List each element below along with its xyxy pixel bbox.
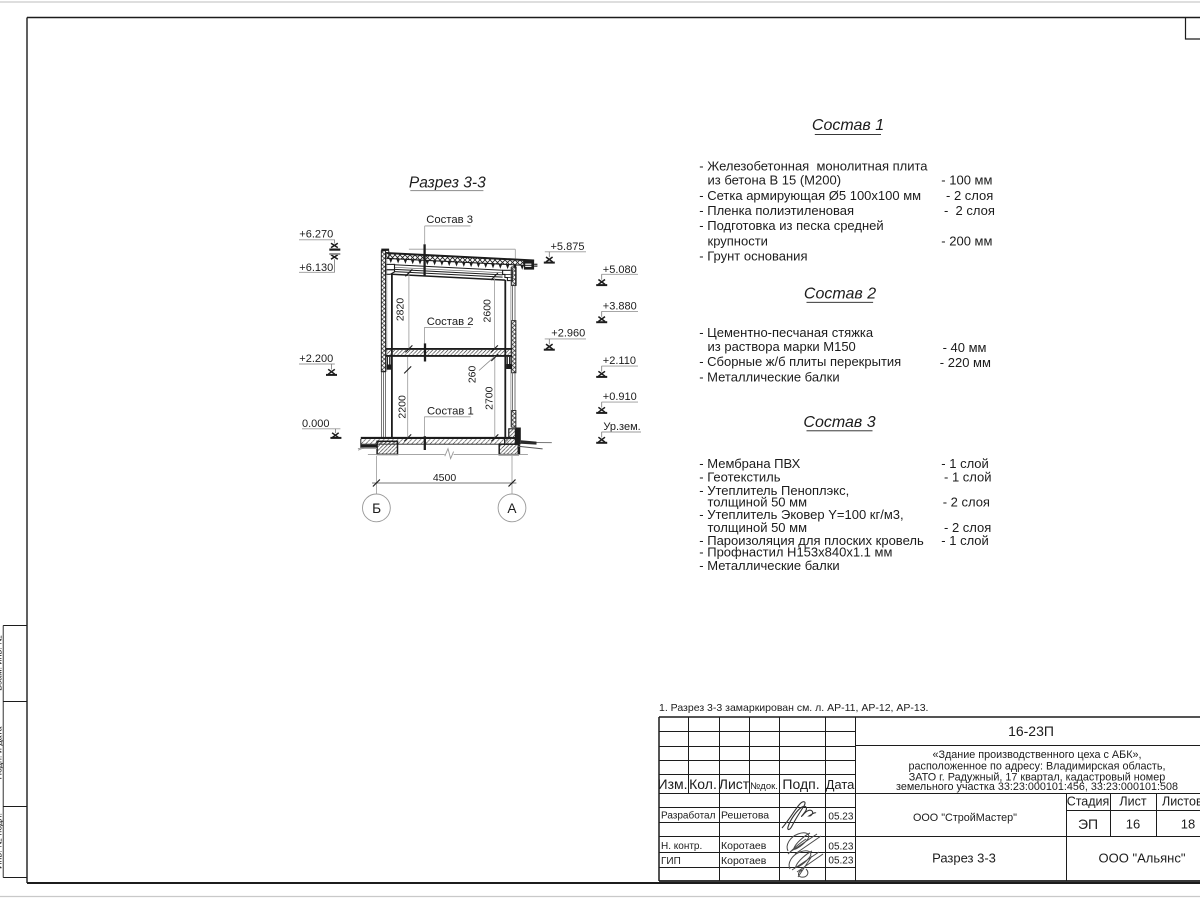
svg-text:Состав 1: Состав 1: [427, 405, 474, 417]
svg-text:2700: 2700: [484, 386, 496, 410]
svg-text:+2.960: +2.960: [551, 328, 585, 340]
svg-text:+0.910: +0.910: [603, 391, 637, 403]
svg-text:земельного участка 33:23:00010: земельного участка 33:23:000101:456, 33:…: [896, 781, 1178, 793]
svg-text:- 2 слоя: - 2 слоя: [943, 495, 990, 510]
svg-text:- Металлические балки: - Металлические балки: [699, 558, 839, 573]
svg-text:+3.880: +3.880: [603, 301, 637, 313]
svg-text:05.23: 05.23: [828, 842, 853, 853]
svg-text:Изм.: Изм.: [658, 776, 688, 792]
svg-text:2600: 2600: [482, 299, 494, 323]
svg-text:расположенное по адресу: Влади: расположенное по адресу: Владимирская об…: [909, 760, 1166, 772]
svg-text:Состав 2: Состав 2: [427, 316, 474, 328]
svg-text:- Подготовка из песка средней: - Подготовка из песка средней: [699, 218, 883, 233]
svg-text:№док.: №док.: [750, 781, 778, 792]
svg-text:- 1 слой: - 1 слой: [941, 533, 989, 548]
svg-text:Лист: Лист: [1119, 795, 1146, 809]
svg-text:ЭП: ЭП: [1078, 816, 1098, 832]
svg-text:- Пленка полиэтиленовая: - Пленка полиэтиленовая: [699, 203, 854, 218]
svg-text:Ур.зем.: Ур.зем.: [603, 421, 640, 433]
svg-text:ГИП: ГИП: [661, 856, 681, 867]
svg-text:18: 18: [1181, 817, 1195, 832]
svg-text:- Грунт основания: - Грунт основания: [699, 248, 807, 263]
svg-text:крупности: крупности: [708, 234, 768, 249]
svg-text:ООО "СтройМастер": ООО "СтройМастер": [913, 812, 1017, 824]
svg-text:- 100 мм: - 100 мм: [941, 172, 992, 187]
svg-text:- 1 слой: - 1 слой: [944, 470, 992, 485]
svg-text:Коротаев: Коротаев: [721, 855, 767, 867]
svg-text:из раствора марки М150: из раствора марки М150: [708, 339, 856, 354]
svg-text:4500: 4500: [433, 472, 457, 484]
svg-text:Н. контр.: Н. контр.: [661, 841, 702, 852]
svg-text:Разрез 3-3: Разрез 3-3: [932, 851, 996, 866]
svg-text:из бетона В 15 (М200): из бетона В 15 (М200): [708, 172, 842, 187]
svg-text:Разработал: Разработал: [661, 810, 716, 822]
svg-text:2200: 2200: [397, 395, 409, 419]
svg-text:1. Разрез 3-3 замаркирован см.: 1. Разрез 3-3 замаркирован см. л. АР-11,…: [659, 702, 928, 714]
svg-text:260: 260: [467, 365, 479, 383]
svg-text:- 220 мм: - 220 мм: [940, 355, 991, 370]
svg-text:Состав 1: Состав 1: [812, 117, 884, 134]
svg-text:- 2 слоя: - 2 слоя: [946, 188, 993, 203]
svg-text:+5.875: +5.875: [551, 241, 585, 253]
svg-text:Подп.: Подп.: [782, 776, 819, 792]
svg-text:Кол.: Кол.: [689, 776, 717, 792]
svg-text:Лист: Лист: [719, 776, 750, 792]
svg-text:- Железобетонная монолитная п: - Железобетонная монолитная плита: [699, 158, 928, 173]
svg-text:05.23: 05.23: [828, 856, 853, 867]
svg-text:2820: 2820: [395, 298, 407, 322]
svg-text:- 200 мм: - 200 мм: [941, 234, 992, 249]
svg-text:- Металлические балки: - Металлические балки: [699, 370, 839, 385]
svg-text:05.23: 05.23: [828, 811, 853, 822]
svg-text:Листов: Листов: [1162, 795, 1200, 809]
svg-text:+2.200: +2.200: [299, 353, 333, 365]
svg-text:ООО "Альянс": ООО "Альянс": [1099, 851, 1186, 866]
svg-text:0.000: 0.000: [302, 418, 330, 430]
svg-text:Состав 2: Состав 2: [804, 286, 876, 303]
svg-text:Состав 3: Состав 3: [426, 214, 473, 226]
svg-text:Решетова: Решетова: [721, 810, 769, 822]
svg-text:Инв. № подл.: Инв. № подл.: [0, 813, 4, 869]
svg-text:+6.270: +6.270: [299, 228, 333, 240]
svg-text:Коротаев: Коротаев: [721, 840, 767, 852]
svg-text:Подп. и дата: Подп. и дата: [0, 726, 4, 779]
svg-text:- 40 мм: - 40 мм: [943, 340, 987, 355]
svg-text:А: А: [507, 501, 517, 516]
svg-text:- Сборные ж/б плиты перекрытия: - Сборные ж/б плиты перекрытия: [699, 354, 901, 369]
svg-text:- 2 слоя: - 2 слоя: [944, 203, 995, 218]
svg-text:Состав 3: Состав 3: [803, 414, 875, 431]
svg-text:16-23П: 16-23П: [1008, 723, 1054, 739]
svg-text:Дата: Дата: [826, 777, 856, 792]
svg-text:Стадия: Стадия: [1067, 795, 1110, 809]
svg-text:16: 16: [1126, 817, 1140, 832]
svg-text:Б: Б: [372, 501, 381, 516]
svg-text:+2.110: +2.110: [603, 355, 636, 367]
svg-text:Взам. инв. №: Взам. инв. №: [0, 635, 4, 691]
svg-text:Разрез 3-3: Разрез 3-3: [409, 174, 486, 191]
svg-text:- Сетка армирующая Ø5 100x100: - Сетка армирующая Ø5 100x100 мм: [699, 188, 921, 203]
